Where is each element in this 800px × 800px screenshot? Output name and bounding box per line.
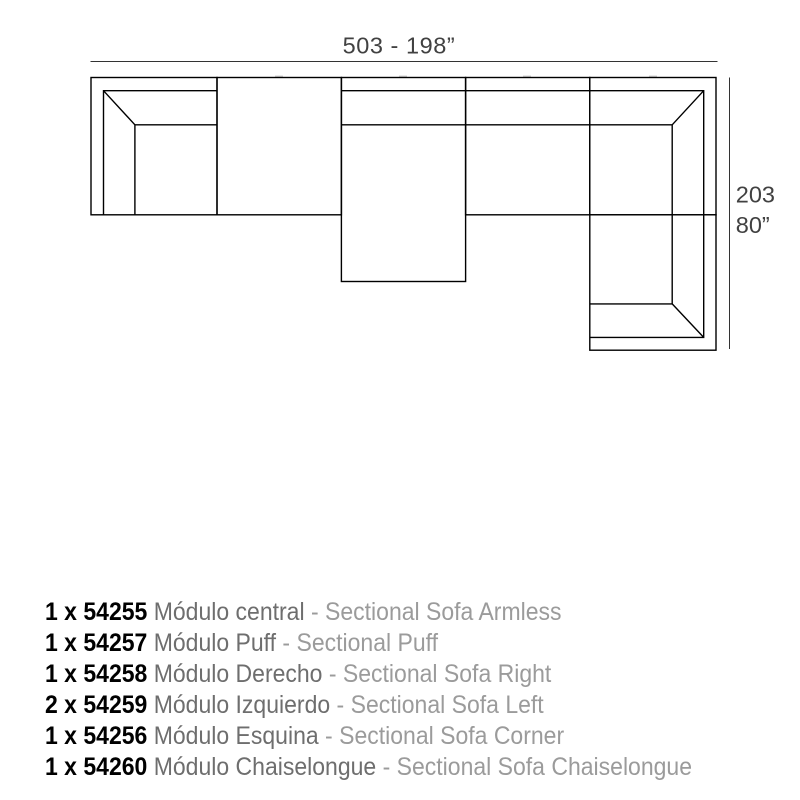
svg-text:203: 203 (736, 182, 775, 208)
svg-text:80”: 80” (736, 212, 770, 238)
svg-text:503 - 198”: 503 - 198” (343, 33, 456, 59)
